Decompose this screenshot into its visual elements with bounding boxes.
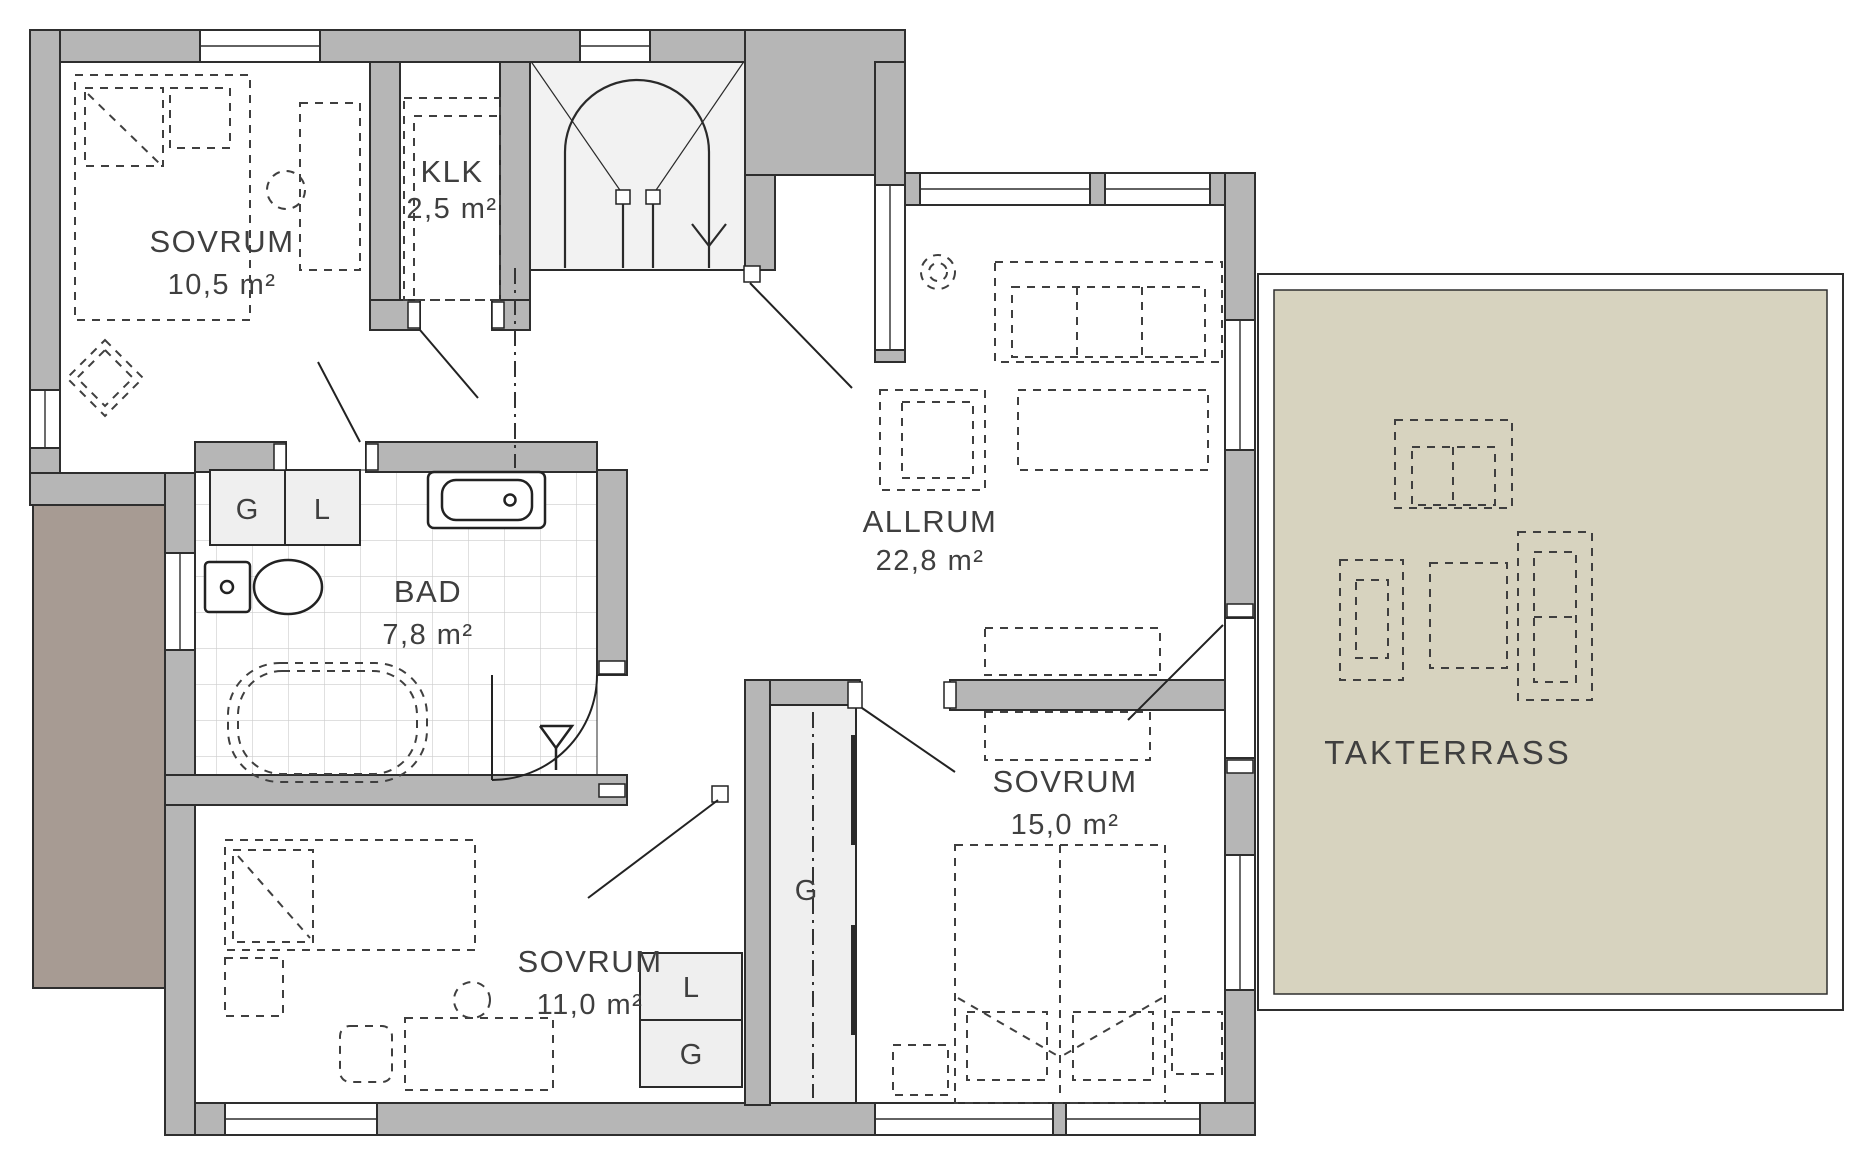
- bedroom-left-name: SOVRUM: [517, 944, 662, 979]
- lower-roof-area: [33, 502, 165, 988]
- stair-newel-right: [646, 190, 660, 204]
- window-living-top-2: [1105, 173, 1210, 205]
- terrace-door-opening: [1225, 618, 1255, 758]
- stair-newel-left: [616, 190, 630, 204]
- wall-klk-right: [500, 62, 530, 330]
- wall-bedroom1-bottom-b: [366, 442, 597, 472]
- wall-bath-bottom: [165, 775, 627, 805]
- tall-wardrobe-label: G: [795, 875, 818, 907]
- toilet: [205, 560, 322, 614]
- floor-plan-page: TAKTERRASS: [0, 0, 1855, 1163]
- bedroom-top-name: SOVRUM: [149, 224, 294, 259]
- window-bath-left: [165, 553, 195, 650]
- bedroom-right-name: SOVRUM: [992, 764, 1137, 799]
- bedroom-left-area: 11,0 m²: [537, 989, 644, 1021]
- wardrobe-g2-label: G: [680, 1039, 703, 1071]
- wardrobe-g-label: G: [236, 494, 259, 526]
- tall-wardrobe: G: [770, 705, 856, 1103]
- floor-plan-drawing: TAKTERRASS: [0, 0, 1855, 1163]
- window-bedroom-left-bottom: [225, 1103, 377, 1135]
- wardrobe-l2-label: L: [683, 972, 699, 1004]
- window-bedroom-right-bottom-1: [875, 1103, 1053, 1135]
- window-stairs: [580, 30, 650, 62]
- wall-bath-right-a: [597, 470, 627, 675]
- bedroom-right-area: 15,0 m²: [1011, 809, 1120, 841]
- bedroom-top-area: 10,5 m²: [168, 269, 277, 301]
- living-area: 22,8 m²: [876, 545, 985, 577]
- window-right-upper: [1225, 320, 1255, 450]
- stair-well: [530, 60, 745, 270]
- lower-roof: [33, 502, 165, 988]
- bath-area: 7,8 m²: [382, 619, 473, 651]
- bath-name: BAD: [394, 574, 462, 609]
- wall-bedroom1-bottom-a: [195, 442, 286, 472]
- window-bedroom-right-bottom-2: [1066, 1103, 1200, 1135]
- window-bedroom-top: [200, 30, 320, 62]
- wardrobe-l-label: L: [314, 494, 330, 526]
- window-right-lower: [1225, 855, 1255, 990]
- wardrobe-sliding-door-b: [851, 925, 856, 1035]
- wall-klk-left: [370, 62, 400, 330]
- terrace: TAKTERRASS: [1258, 274, 1843, 1010]
- sink: [428, 472, 545, 528]
- klk-name: KLK: [420, 154, 483, 189]
- klk-area: 2,5 m²: [406, 193, 497, 225]
- wall-bedroom3-top: [950, 680, 1225, 710]
- window-living-nw: [875, 185, 905, 350]
- living-name: ALLRUM: [863, 504, 998, 539]
- wardrobe-sliding-door-a: [851, 735, 856, 845]
- terrace-label: TAKTERRASS: [1324, 734, 1572, 771]
- window-left-upper: [30, 390, 60, 448]
- hall-wardrobes: G L: [210, 470, 360, 545]
- window-living-top-1: [920, 173, 1090, 205]
- wall-closet-left: [745, 680, 770, 1105]
- staircase: [530, 60, 745, 270]
- wall-stair-right: [745, 175, 775, 270]
